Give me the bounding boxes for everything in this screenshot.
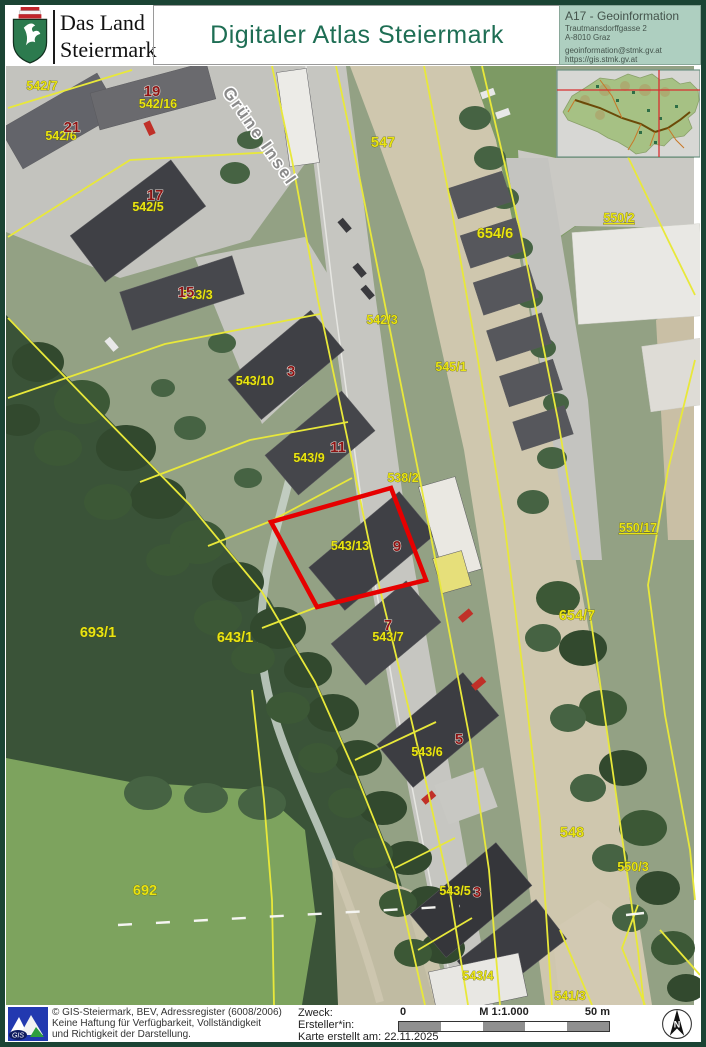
parcel-label: 692 bbox=[133, 883, 157, 899]
house-number: 11 bbox=[330, 439, 346, 456]
department-city: A-8010 Graz bbox=[565, 33, 695, 42]
parcel-label: 541/3 bbox=[554, 989, 585, 1003]
house-number: 19 bbox=[144, 83, 161, 100]
parcel-label: 543/10 bbox=[236, 374, 274, 388]
north-arrow-icon: N bbox=[659, 1006, 695, 1042]
title-box: Digitaler Atlas Steiermark bbox=[153, 5, 561, 65]
house-number: 17 bbox=[147, 187, 164, 204]
parcel-label: 543/5 bbox=[439, 884, 470, 898]
overview-inset-map bbox=[557, 70, 700, 157]
land-steiermark-logo: Das Land Steiermark bbox=[11, 7, 156, 65]
header: Das Land Steiermark Digitaler Atlas Stei… bbox=[5, 5, 701, 66]
parcel-label: 548 bbox=[560, 825, 584, 841]
parcel-label: 547 bbox=[371, 135, 395, 151]
parcel-label: 654/6 bbox=[477, 226, 513, 242]
scale-bar: 0 M 1:1.000 50 m bbox=[398, 1006, 610, 1038]
department-info-box: A17 - Geoinformation Trautmansdorffgasse… bbox=[559, 5, 701, 65]
department-email: geoinformation@stmk.gv.at bbox=[565, 46, 695, 55]
page-title: Digitaler Atlas Steiermark bbox=[210, 21, 504, 50]
map-sheet: Das Land Steiermark Digitaler Atlas Stei… bbox=[0, 0, 706, 1047]
scale-max-label: 50 m bbox=[585, 1006, 610, 1018]
copyright-line-2: Keine Haftung für Verfügbarkeit, Vollstä… bbox=[52, 1018, 282, 1029]
logo-text: Das Land Steiermark bbox=[60, 9, 157, 63]
copyright-line-3: und Richtigkeit der Darstellung. bbox=[52, 1029, 282, 1040]
parcel-label: 654/7 bbox=[559, 608, 595, 624]
house-number: 15 bbox=[178, 284, 195, 301]
parcel-label: 550/17 bbox=[619, 521, 657, 535]
copyright-block: © GIS-Steiermark, BEV, Adressregister (6… bbox=[52, 1007, 282, 1040]
house-number: 9 bbox=[393, 538, 401, 555]
house-number: 21 bbox=[64, 119, 81, 136]
house-number: 3 bbox=[473, 884, 481, 901]
department-street: Trautmansdorffgasse 2 bbox=[565, 24, 695, 33]
logo-line-2: Steiermark bbox=[60, 36, 157, 63]
gis-logo-label: GIS bbox=[12, 1033, 24, 1040]
copyright-line-1: © GIS-Steiermark, BEV, Adressregister (6… bbox=[52, 1007, 282, 1018]
north-letter: N bbox=[674, 1020, 681, 1030]
parcel-label: 693/1 bbox=[80, 625, 116, 641]
map-canvas: Grüne Insel 542/7 542/16 542/6 542/5 543… bbox=[6, 66, 700, 1005]
department-url: https://gis.stmk.gv.at bbox=[565, 55, 695, 64]
house-number: 3 bbox=[287, 363, 295, 380]
parcel-label: 543/6 bbox=[411, 745, 442, 759]
styria-coat-of-arms-icon bbox=[11, 7, 49, 65]
parcel-label: 550/2 bbox=[603, 211, 634, 225]
parcel-label: 542/7 bbox=[26, 79, 57, 93]
logo-divider bbox=[53, 10, 55, 64]
parcel-label: 545/1 bbox=[435, 360, 466, 374]
scale-bar-segments bbox=[398, 1021, 610, 1032]
scale-ratio-label: M 1:1.000 bbox=[398, 1006, 610, 1018]
gis-steiermark-logo: GIS bbox=[8, 1007, 48, 1041]
house-number: 7 bbox=[384, 617, 392, 634]
logo-line-1: Das Land bbox=[60, 9, 157, 36]
parcel-label: 543/4 bbox=[462, 969, 493, 983]
parcel-label: 550/3 bbox=[617, 860, 648, 874]
parcel-label: 538/2 bbox=[387, 471, 418, 485]
department-name: A17 - Geoinformation bbox=[565, 9, 695, 23]
parcel-label: 543/13 bbox=[331, 539, 369, 553]
footer: GIS © GIS-Steiermark, BEV, Adressregiste… bbox=[5, 1005, 701, 1042]
parcel-label: 542/3 bbox=[366, 313, 397, 327]
house-number: 5 bbox=[455, 731, 463, 748]
parcel-label: 543/9 bbox=[293, 451, 324, 465]
parcel-label: 643/1 bbox=[217, 630, 253, 646]
